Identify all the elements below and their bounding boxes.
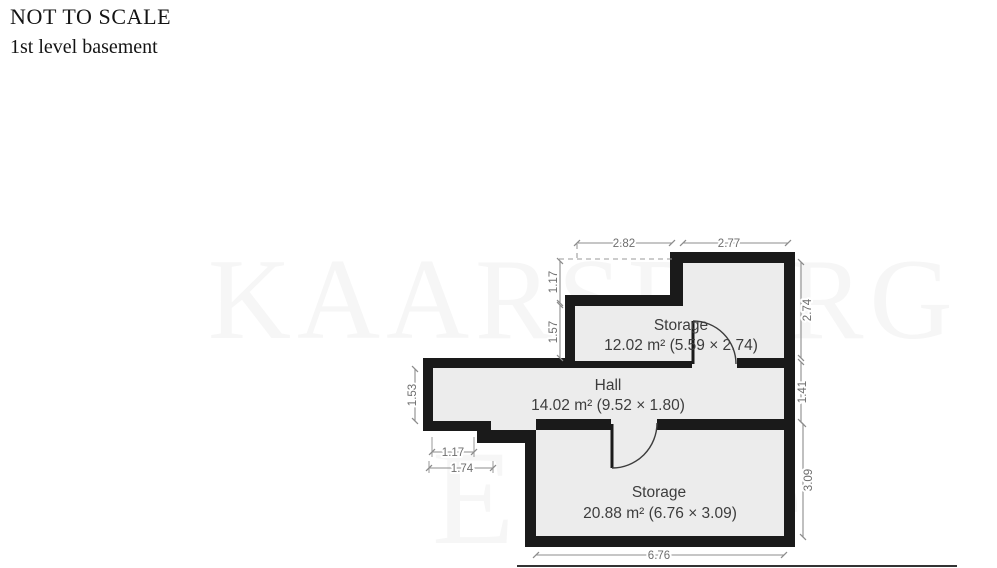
room-name-hall: Hall	[595, 377, 622, 394]
wall-right	[784, 252, 795, 547]
wall-top	[670, 252, 795, 263]
bottom-edge-line	[517, 565, 957, 567]
wall-lower-step	[477, 430, 536, 443]
dimension-label-upper-left-height: 1.57	[548, 321, 560, 343]
dimension-label-hall-left: 1.53	[407, 384, 419, 406]
floorplan-page: NOT TO SCALE 1st level basement KAARSBER…	[0, 0, 997, 568]
dimension-label-bottom: 6.76	[648, 550, 670, 562]
room-name-storage-upper: Storage	[654, 317, 708, 334]
wall-divider-storage-hall-left	[575, 361, 692, 368]
dimension-label-top-right: 2.77	[718, 238, 740, 250]
wall-divider-hall-storage-right	[657, 419, 784, 430]
room-area-storage-lower: 20.88 m² (6.76 × 3.09)	[583, 505, 737, 522]
wall-divider-hall-storage-left	[536, 419, 611, 430]
dimension-label-right-lower: 3.09	[803, 469, 815, 491]
floorplan-drawing: KAARSBERG Estate	[0, 0, 997, 568]
wall-storage-lower-left	[525, 430, 536, 547]
wall-hall-top	[423, 358, 575, 368]
wall-hall-left	[423, 358, 433, 431]
wall-upper-step	[565, 295, 683, 306]
wall-hall-bottom-left	[423, 421, 491, 431]
wall-storage-upper-left	[565, 295, 575, 368]
dimension-label-notch-outer: 1.74	[451, 463, 474, 475]
dimension-label-upper-left-offset: 1.17	[548, 271, 560, 293]
wall-bottom	[525, 536, 795, 547]
room-area-storage-upper: 12.02 m² (5.59 × 2.74)	[604, 337, 758, 354]
room-name-storage-lower: Storage	[632, 484, 686, 501]
dimension-label-top-left: 2.82	[613, 238, 635, 250]
dimension-label-right-mid: 1.41	[797, 381, 809, 403]
dimension-label-notch-inner: 1.17	[442, 447, 464, 459]
dimension-label-right-upper: 2.74	[802, 298, 814, 321]
room-area-hall: 14.02 m² (9.52 × 1.80)	[531, 397, 685, 414]
wall-divider-storage-hall-right	[737, 358, 784, 368]
